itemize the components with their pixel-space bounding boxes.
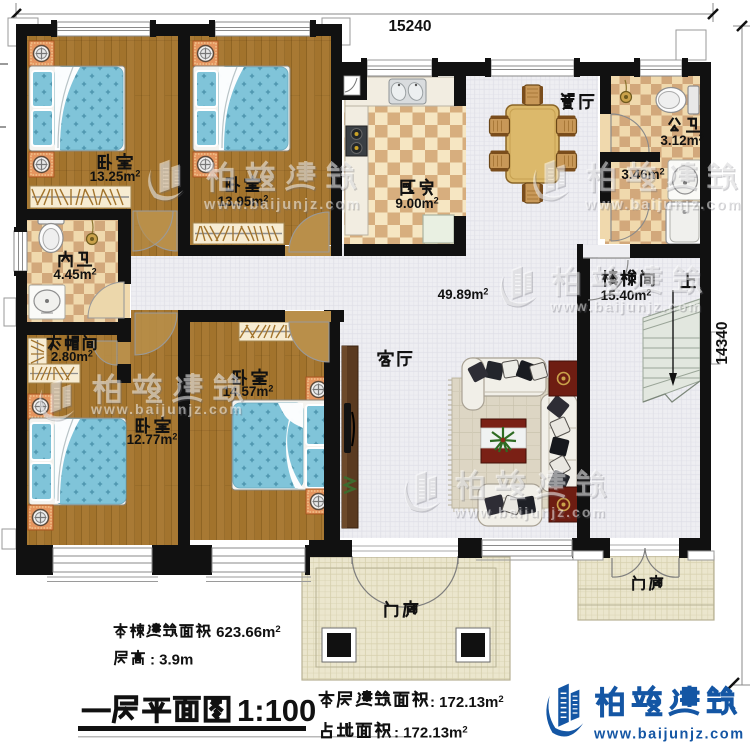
svg-text:12.77m2: 12.77m2 <box>127 432 178 448</box>
svg-text:: 623.66m2: : 623.66m2 <box>207 624 281 641</box>
svg-text:www.baijunjz.com: www.baijunjz.com <box>90 401 244 417</box>
svg-text:: 3.9m: : 3.9m <box>150 652 193 669</box>
svg-text:15240: 15240 <box>388 18 431 35</box>
svg-text:www.baijunjz.com: www.baijunjz.com <box>593 727 745 743</box>
svg-text:www.baijunjz.com: www.baijunjz.com <box>584 197 742 213</box>
svg-text:9.00m2: 9.00m2 <box>395 196 438 212</box>
svg-text:www.baijunjz.com: www.baijunjz.com <box>549 298 703 314</box>
svg-text:49.89m2: 49.89m2 <box>438 287 489 303</box>
svg-text:: 172.13m2: : 172.13m2 <box>394 725 468 742</box>
svg-text:1:100: 1:100 <box>237 693 316 728</box>
svg-text:3.12m2: 3.12m2 <box>660 133 703 149</box>
svg-text:2.80m2: 2.80m2 <box>51 349 93 365</box>
svg-text:www.baijunjz.com: www.baijunjz.com <box>203 197 361 213</box>
svg-text:www.baijunjz.com: www.baijunjz.com <box>453 504 607 520</box>
svg-text:4.45m2: 4.45m2 <box>53 267 96 283</box>
svg-text:13.25m2: 13.25m2 <box>90 169 141 185</box>
svg-text:14340: 14340 <box>714 321 731 364</box>
svg-text:: 172.13m2: : 172.13m2 <box>430 694 504 711</box>
